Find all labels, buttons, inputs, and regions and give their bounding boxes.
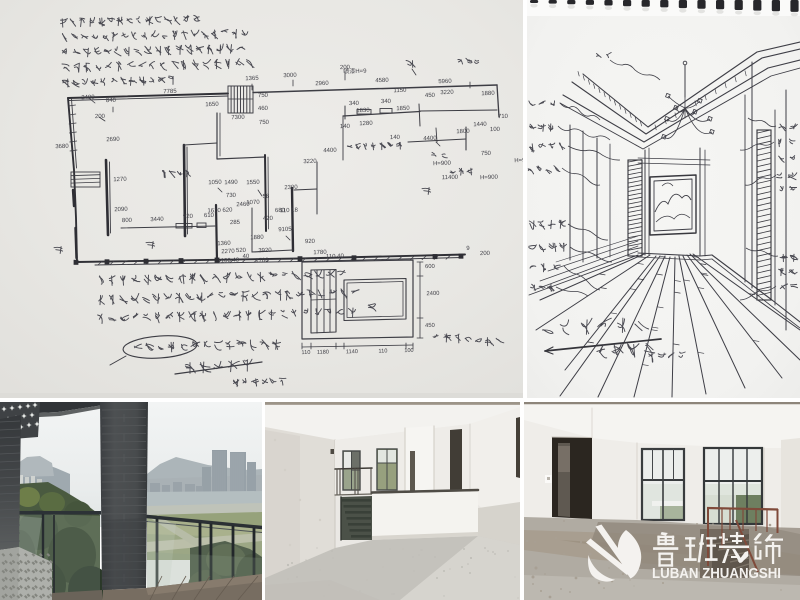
svg-text:200: 200: [480, 251, 491, 257]
svg-text:1610 620: 1610 620: [207, 208, 233, 215]
svg-text:11400: 11400: [442, 175, 459, 182]
svg-text:1880: 1880: [481, 91, 495, 97]
svg-text:2090: 2090: [114, 207, 128, 213]
svg-text:3000: 3000: [283, 73, 297, 79]
svg-text:2690: 2690: [106, 137, 120, 143]
svg-text:1365: 1365: [245, 76, 259, 82]
svg-text:3440: 3440: [150, 217, 164, 223]
svg-text:140: 140: [390, 135, 401, 141]
svg-text:750: 750: [259, 120, 270, 126]
svg-text:1440: 1440: [473, 122, 487, 128]
svg-text:1780: 1780: [255, 258, 269, 264]
svg-text:710: 710: [498, 114, 509, 120]
svg-text:7785: 7785: [163, 89, 177, 95]
svg-text:800: 800: [122, 218, 133, 224]
svg-text:4580: 4580: [375, 78, 389, 84]
svg-text:340: 340: [381, 99, 392, 105]
svg-text:1830: 1830: [356, 108, 370, 114]
svg-text:4400: 4400: [423, 136, 437, 142]
svg-text:2460: 2460: [236, 202, 250, 208]
svg-text:100: 100: [490, 127, 501, 133]
svg-text:460: 460: [258, 106, 269, 112]
svg-text:100 40: 100 40: [221, 258, 240, 265]
svg-text:1050: 1050: [208, 180, 222, 186]
svg-text:110 18: 110 18: [280, 208, 299, 215]
svg-text:920: 920: [305, 239, 316, 245]
svg-text:750: 750: [481, 151, 492, 157]
svg-text:840: 840: [106, 98, 117, 104]
svg-text:2270: 2270: [221, 249, 235, 255]
svg-text:1550: 1550: [246, 180, 260, 186]
svg-text:58: 58: [263, 194, 271, 200]
svg-text:1150: 1150: [393, 88, 407, 94]
svg-text:H=900: H=900: [480, 175, 499, 182]
svg-text:2960: 2960: [315, 81, 329, 87]
svg-text:730: 730: [226, 193, 237, 199]
svg-text:110 40: 110 40: [326, 254, 345, 261]
svg-text:2300: 2300: [284, 185, 298, 191]
svg-text:1490: 1490: [224, 180, 238, 186]
svg-text:140: 140: [340, 124, 351, 130]
svg-text:1270: 1270: [113, 177, 127, 183]
svg-text:7300: 7300: [231, 115, 245, 121]
svg-text:1800: 1800: [456, 129, 470, 135]
svg-text:H=9: H=9: [514, 158, 523, 164]
svg-text:285: 285: [230, 220, 241, 226]
svg-text:200: 200: [95, 114, 106, 120]
svg-text:1880: 1880: [250, 235, 264, 241]
svg-text:1360: 1360: [217, 241, 231, 247]
svg-text:450: 450: [425, 93, 436, 99]
svg-text:3220: 3220: [440, 90, 454, 96]
svg-text:4400: 4400: [323, 148, 337, 154]
svg-text:3220: 3220: [303, 159, 317, 165]
svg-text:H=900: H=900: [433, 161, 452, 168]
svg-text:9105: 9105: [278, 227, 292, 233]
svg-text:920: 920: [183, 214, 194, 220]
svg-text:3920: 3920: [258, 248, 272, 254]
svg-text:750: 750: [258, 93, 269, 99]
svg-text:1280: 1280: [359, 121, 373, 127]
svg-text:9: 9: [466, 246, 470, 252]
svg-text:5960: 5960: [438, 79, 452, 85]
svg-text:2480: 2480: [81, 95, 95, 101]
svg-text:40: 40: [243, 254, 251, 260]
svg-text:3680: 3680: [55, 144, 69, 150]
svg-text:1850: 1850: [396, 106, 410, 112]
svg-text:1650: 1650: [205, 102, 219, 108]
svg-text:LUBAN ZHUANGSHI: LUBAN ZHUANGSHI: [652, 566, 781, 582]
svg-text:340: 340: [349, 101, 360, 107]
svg-text:420: 420: [263, 216, 274, 222]
